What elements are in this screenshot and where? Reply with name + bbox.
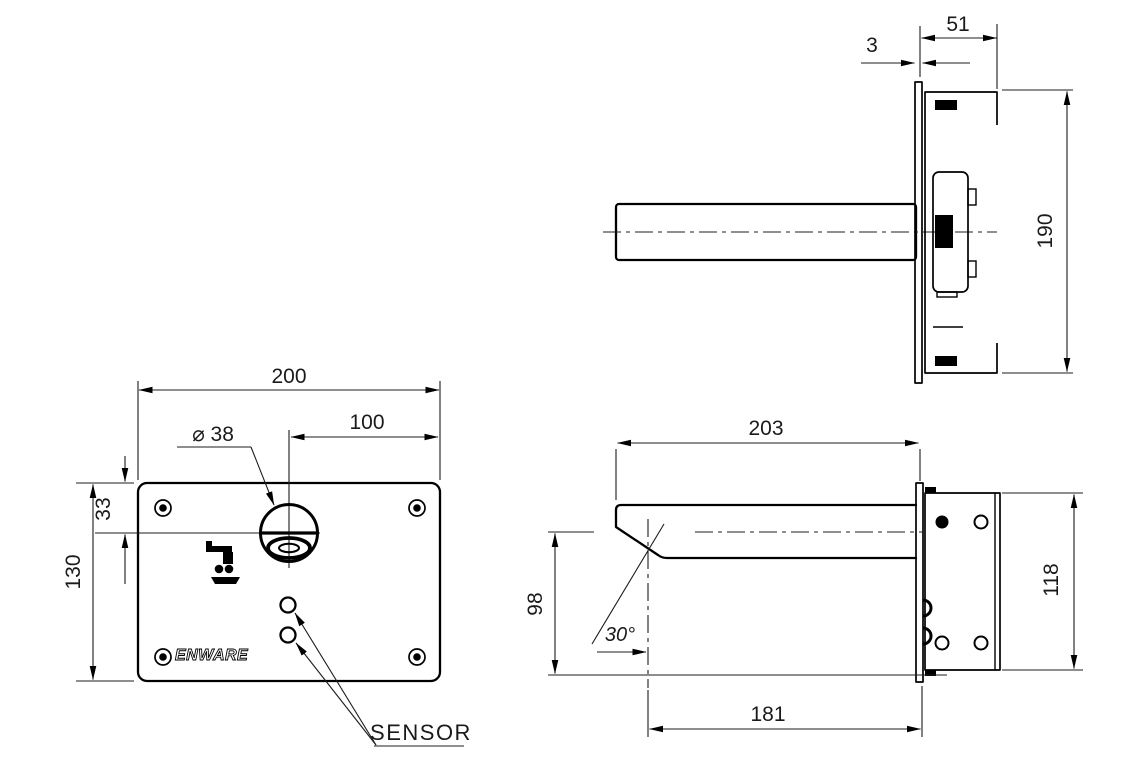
technical-drawing-sheet: ENWARE 200 100 ⌀ 38 33 (0, 0, 1140, 760)
dim-drop-98: 98 (524, 532, 594, 674)
screw-icon (409, 500, 425, 516)
module-tab-bottom (968, 261, 976, 277)
dim-diameter-38: ⌀ 38 (177, 423, 274, 505)
dim-reach-181: 181 (648, 686, 922, 737)
dim-height-118: 118 (1002, 493, 1083, 670)
dim-text: 100 (349, 411, 384, 434)
corner-screws (155, 500, 425, 665)
screw-icon (155, 500, 171, 516)
dim-text: 3 (866, 34, 878, 57)
tap-icon (206, 541, 240, 584)
fixing-hole (975, 637, 988, 650)
screw-icon (155, 649, 171, 665)
dim-depth-51: 51 (920, 13, 997, 89)
front-view: ENWARE 200 100 ⌀ 38 33 (62, 365, 472, 746)
spout-connector (935, 215, 953, 248)
dim-text: 98 (524, 592, 547, 615)
mounting-stud-bottom (935, 356, 957, 366)
dim-text: ⌀ 38 (192, 423, 234, 446)
brand-logo: ENWARE (175, 647, 249, 664)
dim-text: 203 (748, 417, 783, 440)
dim-text: 118 (1040, 563, 1063, 596)
module-tab-top (968, 189, 976, 205)
sensor-label: SENSOR (370, 720, 472, 745)
dim-text: 130 (62, 554, 85, 589)
fixing-hole-filled (936, 516, 949, 529)
dim-angle-30: 30° (597, 624, 646, 652)
dim-offset-100: 100 (291, 411, 438, 437)
side-view-lower: 30° 98 203 181 (524, 417, 1083, 737)
bracket-tab-top (925, 487, 936, 493)
wall-plate (916, 483, 923, 682)
dim-hole-offset-33: 33 (92, 456, 125, 584)
dim-text: 200 (271, 365, 306, 388)
sensor-callout: SENSOR (295, 613, 472, 746)
dim-length-203: 203 (616, 417, 920, 500)
sensor-hole-lower (281, 628, 296, 643)
fixing-hole (975, 516, 988, 529)
dim-text: 181 (750, 703, 785, 726)
fixing-hole (936, 637, 949, 650)
dim-text: 33 (92, 497, 115, 520)
side-view-upper: 51 3 190 (603, 13, 1073, 383)
dim-text: 190 (1034, 213, 1057, 248)
mounting-stud-top (935, 100, 957, 110)
drawing-svg: ENWARE 200 100 ⌀ 38 33 (0, 0, 1140, 760)
sensor-hole-upper (281, 598, 296, 613)
dim-text: 30° (605, 624, 635, 646)
dim-height-190: 190 (1002, 90, 1073, 373)
screw-icon (409, 649, 425, 665)
dim-text: 51 (946, 13, 969, 36)
